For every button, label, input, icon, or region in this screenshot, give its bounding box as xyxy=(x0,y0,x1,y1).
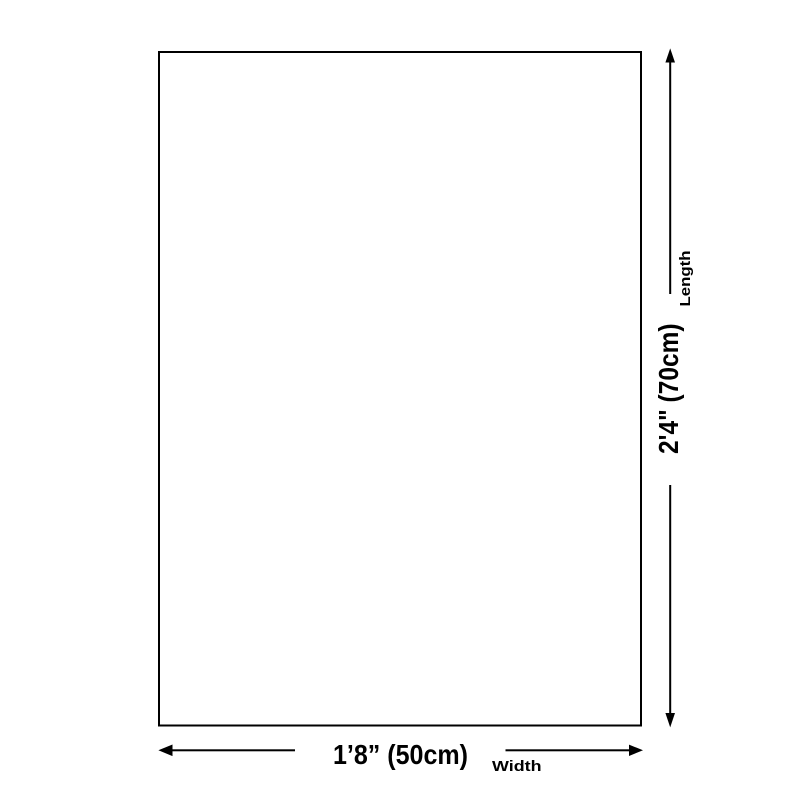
svg-text:2'4" (70cm): 2'4" (70cm) xyxy=(653,323,684,454)
svg-text:1’8” (50cm): 1’8” (50cm) xyxy=(333,739,468,770)
svg-text:Length: Length xyxy=(677,251,694,307)
svg-text:Width: Width xyxy=(492,758,542,775)
